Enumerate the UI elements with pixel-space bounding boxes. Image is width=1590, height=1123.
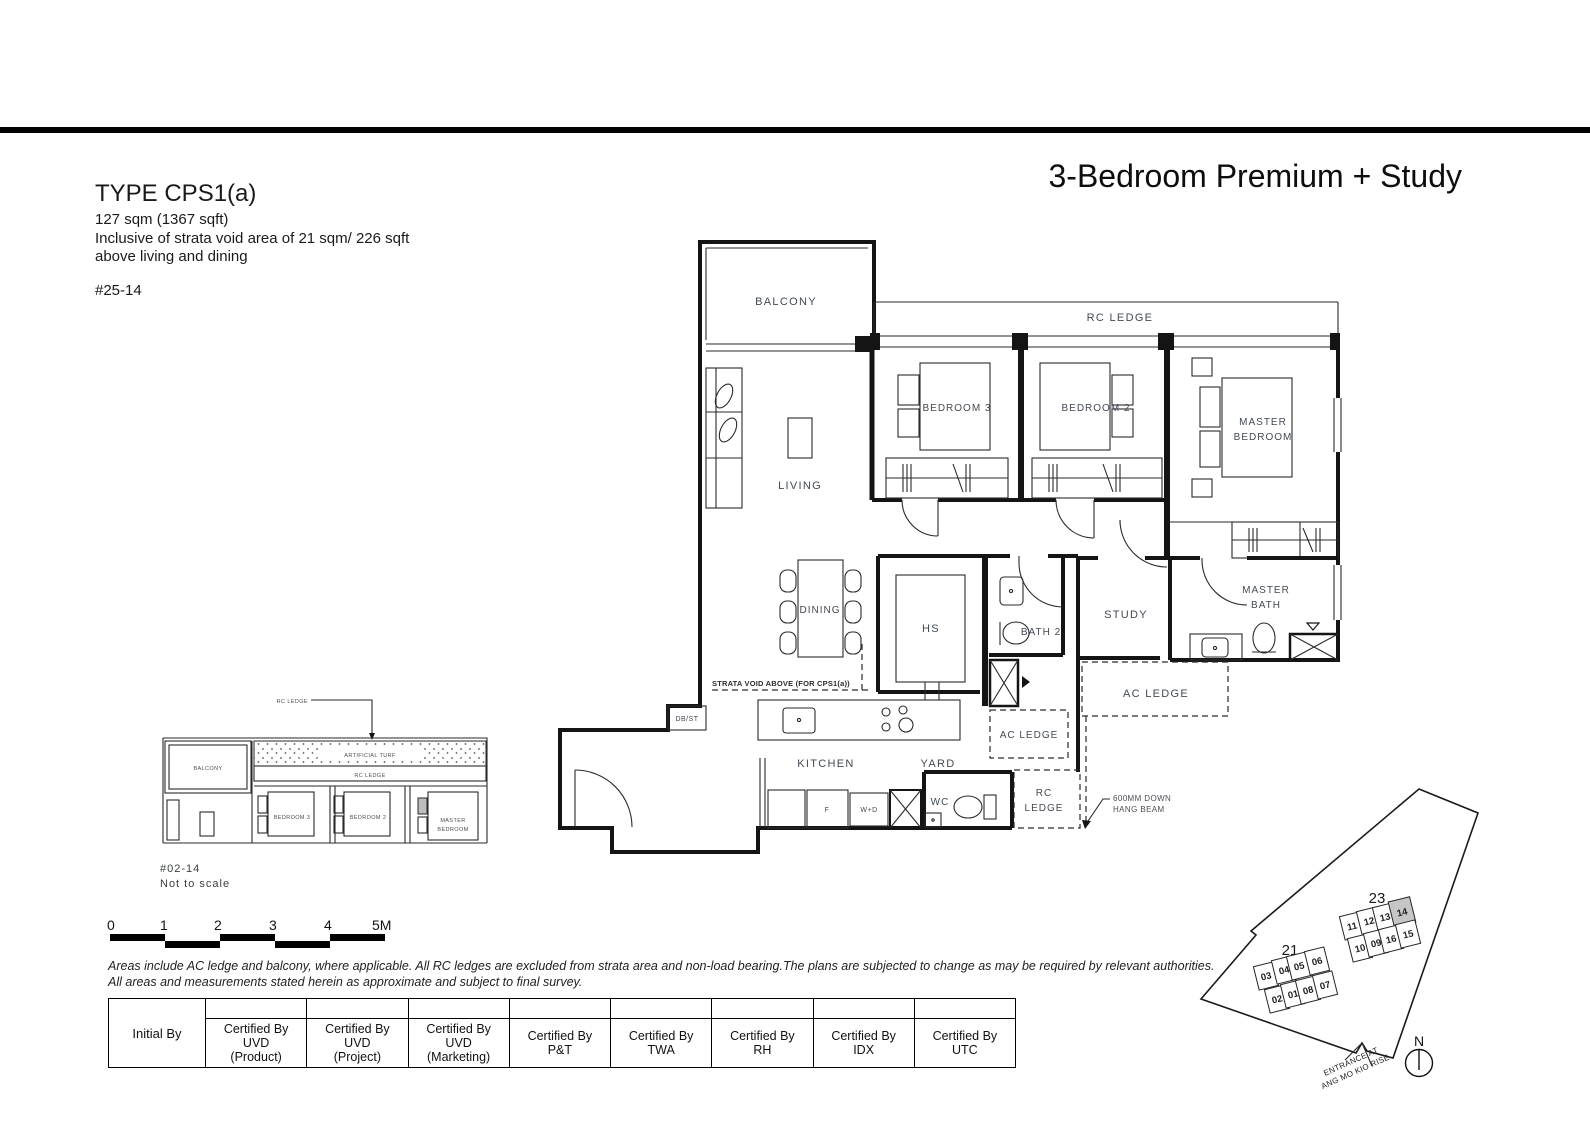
north-compass-icon: N [1406,1033,1433,1077]
db-st-label: DB/ST [675,716,698,723]
scale-tick-1: 1 [160,917,168,933]
bedroom-2: BEDROOM 2 [1032,363,1162,498]
inset-rc-ledge-callout: RC LEDGE [277,699,308,705]
dining-area: DINING [780,560,861,657]
scale-tick-3: 3 [269,917,277,933]
disclaimer-line-1: Areas include AC ledge and balcony, wher… [108,958,1368,974]
master-bedroom-label-2: BEDROOM [1234,432,1293,443]
cert-col-uvd-marketing: Certified By UVD (Marketing) [408,999,509,1067]
beam-label-2: HANG BEAM [1113,805,1165,814]
scale-tick-0: 0 [107,917,115,933]
signature-cell[interactable] [206,999,306,1019]
master-bedroom-label-1: MASTER [1239,417,1287,428]
bath-2: BATH 2 [989,556,1063,706]
signature-cell[interactable] [814,999,914,1019]
bedroom-3: BEDROOM 3 [886,363,1008,498]
dining-label: DINING [800,605,841,616]
cert-col-utc: Certified By UTC [914,999,1015,1067]
inset-master-label-2: BEDROOM [437,827,468,833]
inset-caption-scale: Not to scale [160,878,230,890]
master-bedroom: MASTER BEDROOM [1167,358,1341,558]
ac-ledge-mid-label: AC LEDGE [1000,730,1059,741]
cert-label: Certified By TWA [611,1019,711,1067]
beam-label-1: 600MM DOWN [1113,794,1171,803]
rc-ledge-top-label: RC LEDGE [1087,312,1154,324]
inset-bedroom2-label: BEDROOM 2 [350,815,387,821]
inset-bedroom3-label: BEDROOM 3 [274,815,311,821]
beam-callout: 600MM DOWN HANG BEAM [1082,716,1171,829]
cert-col-rh: Certified By RH [711,999,812,1067]
cert-label: Certified By RH [712,1019,812,1067]
cert-label: Certified By UVD (Marketing) [409,1019,509,1067]
cert-label: Certified By UVD (Project) [307,1019,407,1067]
cert-label: Certified By UVD (Product) [206,1019,306,1067]
living-label: LIVING [778,480,822,492]
balcony-label: BALCONY [755,296,817,308]
cert-col-uvd-product: Certified By UVD (Product) [205,999,306,1067]
cert-label: Certified By P&T [510,1019,610,1067]
entrance-callout: ENTRANCE AT ANG MO KIO RISE [1315,1043,1391,1091]
site-plan: 23 21 11 12 13 14 10 09 16 15 03 04 05 0… [1201,789,1478,1091]
floorplan-page: TYPE CPS1(a) 127 sqm (1367 sqft) Inclusi… [0,0,1590,1123]
rc-ledge-bottom: RC LEDGE [1014,770,1080,828]
block-23-label: 23 [1369,890,1386,907]
site-boundary [1201,789,1478,1058]
ac-ledge-right: AC LEDGE [1082,662,1228,716]
scale-bar: 0 1 2 3 4 5M [107,917,391,948]
inset-master-label-1: MASTER [440,818,465,824]
rc-ledge-bottom-label-1: RC [1036,788,1052,799]
bath2-label: BATH 2 [1021,627,1061,638]
wc-label: WC [931,797,950,808]
cert-col-twa: Certified By TWA [610,999,711,1067]
signature-cell[interactable] [409,999,509,1019]
bedroom2-label: BEDROOM 2 [1061,403,1130,414]
master-bath: MASTER BATH [1170,558,1341,660]
ac-ledge-mid: AC LEDGE [990,710,1068,758]
inset-rc-ledge-label: RC LEDGE [354,773,385,779]
signature-cell[interactable] [307,999,407,1019]
entrance-door [575,770,632,827]
strata-void: STRATA VOID ABOVE (FOR CPS1(a)) [712,644,868,690]
study-label: STUDY [1104,609,1148,621]
bedroom-walls [872,347,1167,567]
inset-caption-unit: #02-14 [160,863,200,875]
kitchen-label: KITCHEN [797,758,854,770]
master-bath-label-2: BATH [1251,600,1281,611]
master-bath-label-1: MASTER [1242,585,1290,596]
main-floor-plan: RC LEDGE BALCONY LIVING [560,242,1341,852]
inset-plan: RC LEDGE BALCONY ARTIFICIAL TURF RC LEDG… [160,699,487,890]
yard-label: YARD [921,758,956,770]
living-room: LIVING [706,368,822,508]
scale-tick-5: 5M [372,917,391,933]
cert-label: Certified By UTC [915,1019,1015,1067]
signature-cell[interactable] [915,999,1015,1019]
inset-turf-label: ARTIFICIAL TURF [344,753,396,759]
north-label: N [1414,1033,1424,1049]
rc-ledge-top: RC LEDGE [870,302,1340,350]
balcony-room: BALCONY [706,248,871,352]
washer-dryer-label: W+D [860,807,877,814]
scale-tick-2: 2 [214,917,222,933]
wc-room: WC [925,795,996,827]
cert-col-idx: Certified By IDX [813,999,914,1067]
fridge-label: F [825,807,830,814]
floor-plan-svg: RC LEDGE BALCONY LIVING [0,0,1590,1123]
bedroom3-label: BEDROOM 3 [922,403,991,414]
disclaimer-line-2: All areas and measurements stated herein… [108,974,1368,990]
cert-col-uvd-project: Certified By UVD (Project) [306,999,407,1067]
signature-cell[interactable] [712,999,812,1019]
initial-by-cell: Initial By [109,999,205,1067]
db-st-box: DB/ST [668,706,706,730]
inset-balcony-label: BALCONY [193,766,222,772]
cert-label: Certified By IDX [814,1019,914,1067]
hs-label: HS [922,623,940,635]
scale-tick-4: 4 [324,917,332,933]
ac-ledge-right-label: AC LEDGE [1123,688,1189,700]
rc-ledge-bottom-label-2: LEDGE [1025,803,1064,814]
signature-cell[interactable] [611,999,711,1019]
certification-table: Initial By Certified By UVD (Product) Ce… [108,998,1016,1068]
kitchen-area: KITCHEN YARD F W+D [758,700,960,828]
signature-cell[interactable] [510,999,610,1019]
cert-col-pt: Certified By P&T [509,999,610,1067]
strata-void-label: STRATA VOID ABOVE (FOR CPS1(a)) [712,679,850,688]
study-room: STUDY [1078,558,1170,621]
